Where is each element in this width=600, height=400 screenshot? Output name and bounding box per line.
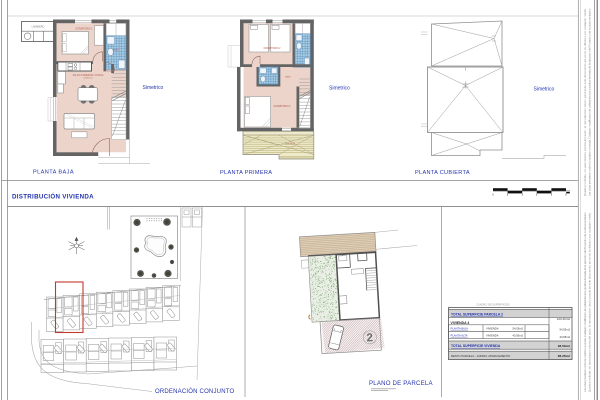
svg-text:88,25m2: 88,25m2 [558, 354, 570, 358]
svg-text:PLANTA PRIMERA: PLANTA PRIMERA [220, 170, 272, 176]
svg-text:98,50m2: 98,50m2 [558, 344, 570, 348]
svg-text:Simetrico: Simetrico [329, 86, 350, 92]
svg-text:TERRAZA: TERRAZA [285, 143, 296, 146]
svg-text:DISTRIBUCIÓN VIVIENDA: DISTRIBUCIÓN VIVIENDA [12, 193, 94, 201]
svg-text:RESTO PARCELA - JARDIN- APAR: RESTO PARCELA - JARDIN- APARCAMIENTO [451, 354, 511, 358]
svg-text:PLANTA BAJA: PLANTA BAJA [451, 327, 469, 331]
svg-text:TOTAL SUPERFICIE VIVIENDA: TOTAL SUPERFICIE VIVIENDA [451, 344, 501, 348]
svg-text:43,95m2: 43,95m2 [513, 334, 524, 338]
svg-text:TOTAL SUPERFICIE PARCELA 2: TOTAL SUPERFICIE PARCELA 2 [451, 312, 503, 316]
svg-text:PLANTA CUBIERTA: PLANTA CUBIERTA [415, 170, 470, 176]
svg-text:2: 2 [366, 332, 373, 344]
svg-text:Queda prohibida, sin autorizac: Queda prohibida, sin autorizacion escrit… [583, 8, 587, 196]
svg-text:PLANTA ALTA: PLANTA ALTA [451, 334, 468, 338]
svg-text:54,55m2: 54,55m2 [513, 327, 524, 331]
svg-text:BAÑO: BAÑO [113, 49, 119, 52]
svg-text:PLANTA BAJA: PLANTA BAJA [33, 170, 74, 176]
svg-text:Las cotas prevalecen sobre la: Las cotas prevalecen sobre la medicion a… [583, 212, 587, 392]
svg-text:VIVIENDA: VIVIENDA [486, 327, 499, 331]
svg-text:43,95m2: 43,95m2 [560, 335, 571, 339]
svg-text:DORMITORIO 2: DORMITORIO 2 [264, 48, 282, 50]
svg-text:CUADRO DE SUPERFICIES: CUADRO DE SUPERFICIES [476, 303, 510, 307]
svg-text:VIVIENDA 4: VIVIENDA 4 [451, 321, 470, 325]
svg-text:LAVADERO: LAVADERO [32, 26, 45, 29]
svg-text:VIVIENDA: VIVIENDA [486, 334, 499, 338]
svg-text:PASO: PASO [285, 76, 291, 79]
svg-text:DORMITORIO 3: DORMITORIO 3 [274, 106, 292, 108]
svg-text:PLANO DE PARCELA: PLANO DE PARCELA [369, 380, 433, 387]
svg-text:ORDENACIÓN CONJUNTO: ORDENACIÓN CONJUNTO [155, 388, 234, 395]
svg-text:Simetrico: Simetrico [534, 87, 555, 93]
svg-text:54,55m2: 54,55m2 [560, 328, 571, 332]
svg-text:Las cotas prevalecen sobre la: Las cotas prevalecen sobre la medicion a… [588, 8, 592, 196]
svg-text:Simetrico: Simetrico [143, 85, 164, 91]
svg-text:SALON COMEDOR- COCINA: SALON COMEDOR- COCINA [73, 74, 104, 77]
svg-text:Queda prohibida, sin autorizac: Queda prohibida, sin autorizacion escrit… [588, 212, 592, 392]
svg-text:DORMITORIO 1: DORMITORIO 1 [76, 28, 94, 30]
svg-text:123,46m2: 123,46m2 [557, 317, 571, 321]
svg-text:24,80 m2: 24,80 m2 [83, 78, 93, 80]
